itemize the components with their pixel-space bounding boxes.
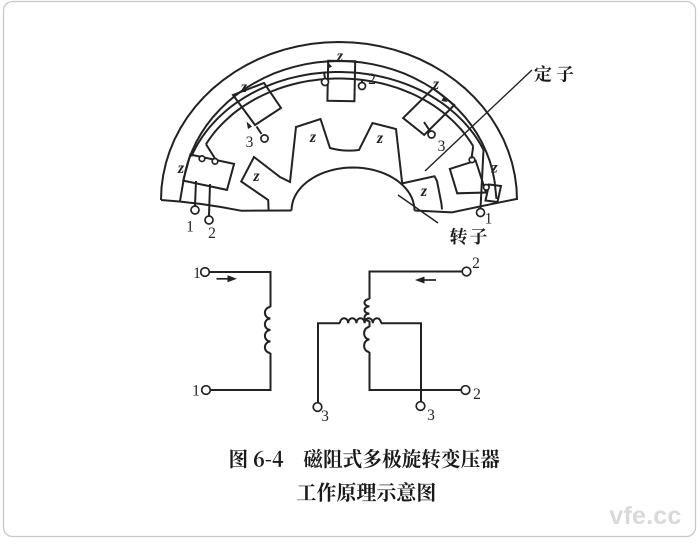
svg-text:z: z bbox=[240, 79, 248, 96]
svg-text:1: 1 bbox=[193, 265, 201, 282]
svg-text:z: z bbox=[490, 160, 498, 177]
svg-text:3: 3 bbox=[321, 408, 329, 425]
svg-text:z: z bbox=[376, 130, 384, 147]
svg-text:2: 2 bbox=[208, 225, 216, 242]
svg-text:1: 1 bbox=[192, 383, 200, 400]
svg-text:z: z bbox=[336, 48, 344, 65]
svg-text:z: z bbox=[309, 129, 317, 146]
svg-text:1: 1 bbox=[186, 219, 194, 236]
svg-text:z: z bbox=[252, 168, 260, 185]
svg-text:vfe.cc: vfe.cc bbox=[609, 502, 681, 530]
svg-text:3: 3 bbox=[246, 134, 254, 151]
svg-text:2: 2 bbox=[472, 255, 480, 272]
svg-text:z: z bbox=[420, 183, 428, 200]
svg-text:1: 1 bbox=[485, 211, 493, 228]
svg-text:z: z bbox=[177, 160, 185, 177]
svg-text:3: 3 bbox=[427, 407, 435, 424]
svg-text:2: 2 bbox=[368, 71, 376, 88]
svg-text:2: 2 bbox=[473, 386, 481, 403]
svg-text:z: z bbox=[432, 76, 440, 93]
